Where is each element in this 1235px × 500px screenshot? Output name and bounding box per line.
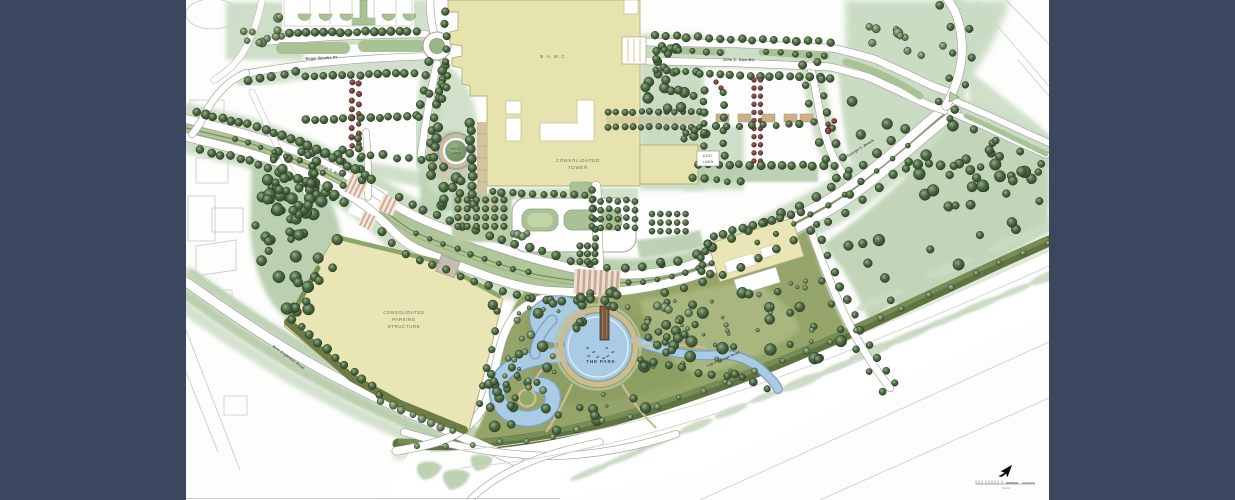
svg-text:LAWN: LAWN: [703, 160, 714, 164]
svg-text:THE PARK: THE PARK: [586, 359, 616, 364]
svg-text:CONSOLIDATED: CONSOLIDATED: [556, 158, 600, 163]
svg-text:PARKING: PARKING: [392, 317, 416, 322]
svg-text:TOWER: TOWER: [568, 165, 588, 170]
svg-text:B.A.M.C: B.A.M.C: [540, 54, 566, 59]
svg-text:CONSOLIDATED: CONSOLIDATED: [383, 310, 425, 315]
svg-text:LAWN: LAWN: [451, 152, 462, 156]
svg-text:EAST: EAST: [703, 154, 713, 158]
svg-text:John C. Glen Rd.: John C. Glen Rd.: [723, 58, 755, 63]
svg-text:STRUCTURE: STRUCTURE: [388, 324, 420, 329]
svg-text:SCALE: SCALE: [1002, 487, 1010, 490]
svg-text:WEST: WEST: [451, 147, 461, 151]
